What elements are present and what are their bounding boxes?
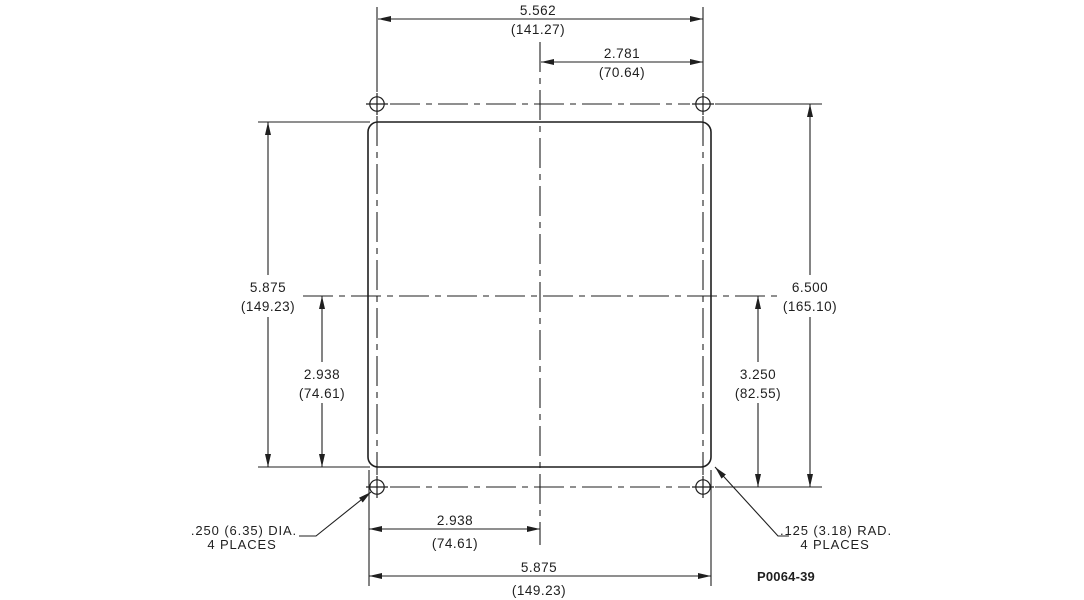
note-hole-diameter-line2: 4 PLACES (207, 537, 276, 552)
mounting-hole-top-right (692, 93, 714, 115)
dimension-panel-width: 5.875 (149.23) (369, 560, 711, 598)
dim-value-in: 5.562 (520, 3, 556, 18)
dim-value-mm: (82.55) (735, 386, 781, 401)
dim-value-mm: (74.61) (299, 386, 345, 401)
dim-value-mm: (141.27) (511, 22, 565, 37)
note-hole-diameter: .250 (6.35) DIA. 4 PLACES (191, 492, 371, 552)
dimension-panel-height: 5.875 (149.23) (241, 122, 295, 467)
dim-value-in: 2.938 (437, 513, 473, 528)
note-corner-radius-line1: .125 (3.18) RAD. (780, 523, 892, 538)
note-hole-diameter-line1: .250 (6.35) DIA. (191, 523, 297, 538)
dim-value-in: 2.781 (604, 46, 640, 61)
dim-value-mm: (74.61) (432, 536, 478, 551)
note-corner-radius-line2: 4 PLACES (800, 537, 869, 552)
dim-value-in: 6.500 (792, 280, 828, 295)
leader-corner-radius (715, 467, 789, 536)
dimension-panel-half-width: 2.938 (74.61) (369, 513, 540, 551)
dimension-hole-half-height: 3.250 (82.55) (735, 296, 781, 487)
drawing-canvas: 5.562 (141.27) 2.781 (70.64) 5.875 (149.… (0, 0, 1084, 600)
part-number: P0064-39 (757, 569, 815, 584)
dimension-hole-half-width: 2.781 (70.64) (541, 46, 703, 80)
dimension-drawing: 5.562 (141.27) 2.781 (70.64) 5.875 (149.… (0, 0, 1084, 600)
dim-value-in: 2.938 (304, 367, 340, 382)
dim-value-mm: (149.23) (512, 583, 566, 598)
mounting-hole-top-left (366, 93, 388, 115)
dim-value-mm: (70.64) (599, 65, 645, 80)
centerlines (303, 42, 778, 545)
dim-value-mm: (165.10) (783, 299, 837, 314)
dimension-panel-half-height: 2.938 (74.61) (299, 296, 345, 467)
dim-value-in: 5.875 (250, 280, 286, 295)
dimension-hole-span-height: 6.500 (165.10) (783, 104, 837, 487)
leader-hole-diameter (299, 492, 371, 536)
dimension-hole-span-width: 5.562 (141.27) (378, 3, 703, 37)
dim-value-mm: (149.23) (241, 299, 295, 314)
dim-value-in: 3.250 (740, 367, 776, 382)
dim-value-in: 5.875 (521, 560, 557, 575)
note-corner-radius: .125 (3.18) RAD. 4 PLACES (715, 467, 892, 552)
